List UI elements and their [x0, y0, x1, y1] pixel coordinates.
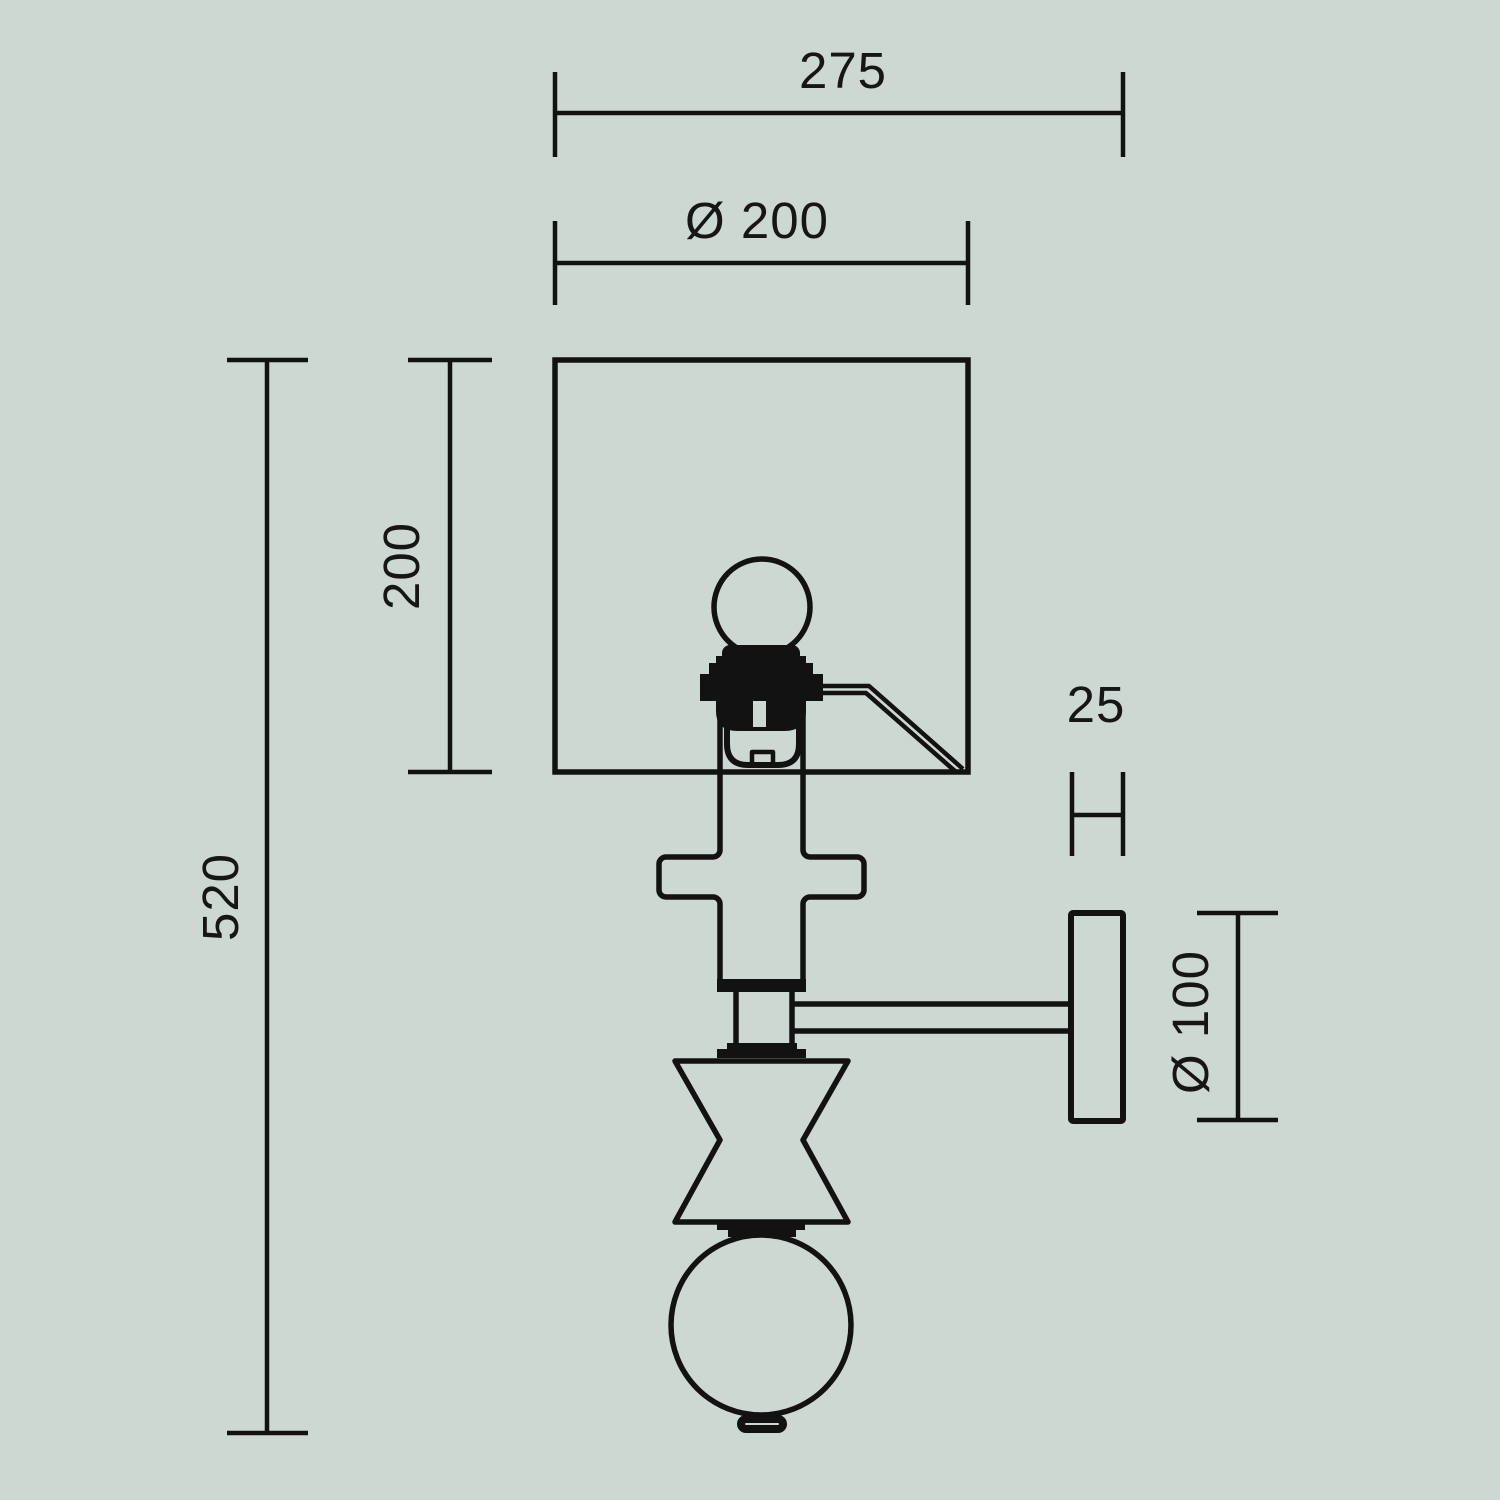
- collar-band-mid-bottom: [717, 1049, 806, 1058]
- sphere-element: [671, 1235, 851, 1415]
- socket-wing-left: [700, 674, 720, 701]
- dim-plate-diameter: Ø 100: [1162, 913, 1278, 1120]
- collar-band-upper: [717, 979, 806, 992]
- cross-element-right-outline: [803, 698, 864, 983]
- bulb: [714, 559, 810, 655]
- lamp-object: [555, 360, 1123, 1429]
- dim-label-shade-diameter: Ø 200: [685, 192, 829, 249]
- technical-drawing-svg: 275 Ø 200 200 520 25: [0, 0, 1500, 1500]
- end-cap: [741, 1419, 783, 1429]
- dim-label-shade-height: 200: [373, 522, 430, 610]
- diagram-canvas: 275 Ø 200 200 520 25: [0, 0, 1500, 1500]
- socket-wing-right: [802, 674, 823, 701]
- dim-label-plate-diameter: Ø 100: [1162, 950, 1219, 1094]
- dim-shade-height: 200: [373, 360, 492, 772]
- dim-label-overall-width: 275: [799, 42, 887, 99]
- hourglass-element: [675, 1061, 848, 1222]
- dim-label-plate-thickness: 25: [1067, 676, 1126, 733]
- dim-label-overall-height: 520: [192, 853, 249, 941]
- dim-overall-height: 520: [192, 360, 308, 1433]
- dim-overall-width: 275: [555, 42, 1123, 157]
- socket-slot: [753, 701, 766, 727]
- cross-element-left-outline: [659, 698, 720, 983]
- dim-shade-diameter: Ø 200: [555, 192, 968, 305]
- dim-plate-thickness: 25: [1067, 676, 1126, 856]
- wall-plate: [1071, 913, 1123, 1121]
